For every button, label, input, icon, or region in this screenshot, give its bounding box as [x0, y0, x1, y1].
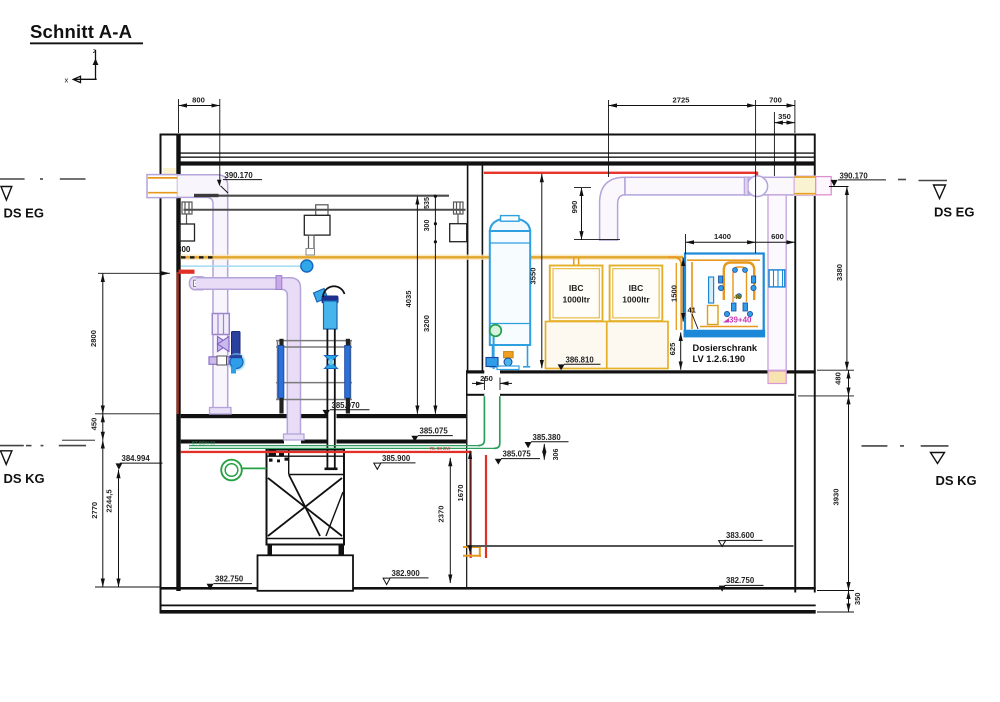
svg-text:RL 88 BW: RL 88 BW	[430, 446, 451, 451]
svg-text:BT BEW 50: BT BEW 50	[192, 441, 216, 446]
svg-text:383.600: 383.600	[726, 531, 755, 540]
svg-text:350: 350	[778, 112, 791, 121]
svg-text:390.170: 390.170	[840, 171, 869, 180]
svg-text:39+40: 39+40	[729, 316, 752, 325]
svg-text:1000ltr: 1000ltr	[562, 295, 590, 305]
svg-text:480: 480	[834, 372, 843, 385]
svg-text:3930: 3930	[832, 489, 841, 506]
svg-text:LV 1.2.6.190: LV 1.2.6.190	[693, 354, 746, 364]
svg-text:385.380: 385.380	[533, 433, 562, 442]
svg-text:385.075: 385.075	[420, 426, 449, 435]
svg-text:41: 41	[688, 306, 696, 315]
svg-text:350: 350	[853, 592, 862, 605]
svg-text:DS EG: DS EG	[934, 205, 974, 220]
svg-text:700: 700	[769, 95, 782, 104]
svg-text:382.750: 382.750	[726, 576, 755, 585]
svg-text:1400: 1400	[714, 232, 731, 241]
svg-text:300: 300	[424, 220, 431, 232]
svg-text:385.075: 385.075	[503, 450, 532, 459]
svg-text:Schnitt A-A: Schnitt A-A	[30, 21, 132, 42]
svg-text:250: 250	[480, 374, 493, 383]
svg-text:385.900: 385.900	[382, 454, 411, 463]
svg-text:990: 990	[570, 201, 579, 214]
svg-text:1500: 1500	[670, 285, 679, 302]
svg-text:382.900: 382.900	[392, 569, 421, 578]
svg-text:DS EG: DS EG	[4, 206, 44, 221]
svg-text:46: 46	[734, 294, 742, 301]
svg-text:3380: 3380	[835, 264, 844, 281]
svg-text:625: 625	[668, 342, 677, 355]
svg-text:535: 535	[424, 197, 431, 209]
svg-text:1670: 1670	[456, 485, 465, 502]
svg-text:300: 300	[177, 245, 191, 254]
svg-text:384.994: 384.994	[122, 454, 151, 463]
svg-text:4035: 4035	[404, 290, 413, 308]
svg-text:DS KG: DS KG	[4, 471, 45, 486]
svg-text:DS KG: DS KG	[936, 473, 977, 488]
svg-text:z: z	[93, 48, 96, 55]
svg-text:1000ltr: 1000ltr	[622, 295, 650, 305]
svg-text:IBC: IBC	[629, 283, 644, 293]
svg-text:2725: 2725	[673, 95, 691, 104]
svg-text:306: 306	[553, 449, 560, 461]
svg-text:385.970: 385.970	[332, 401, 361, 410]
svg-text:800: 800	[192, 95, 205, 104]
svg-text:2770: 2770	[90, 502, 99, 519]
svg-text:2800: 2800	[89, 330, 98, 347]
svg-text:390.170: 390.170	[225, 171, 254, 180]
svg-text:3200: 3200	[422, 315, 431, 332]
svg-text:3550: 3550	[529, 268, 538, 285]
svg-text:600: 600	[771, 232, 784, 241]
svg-text:2244,5: 2244,5	[105, 489, 114, 513]
svg-text:2370: 2370	[436, 506, 445, 523]
svg-text:IBC: IBC	[569, 283, 584, 293]
svg-text:Dosierschrank: Dosierschrank	[693, 343, 758, 353]
svg-text:450: 450	[90, 418, 99, 431]
svg-text:386.810: 386.810	[566, 355, 595, 364]
svg-text:x: x	[65, 76, 69, 85]
svg-text:382.750: 382.750	[215, 574, 244, 583]
